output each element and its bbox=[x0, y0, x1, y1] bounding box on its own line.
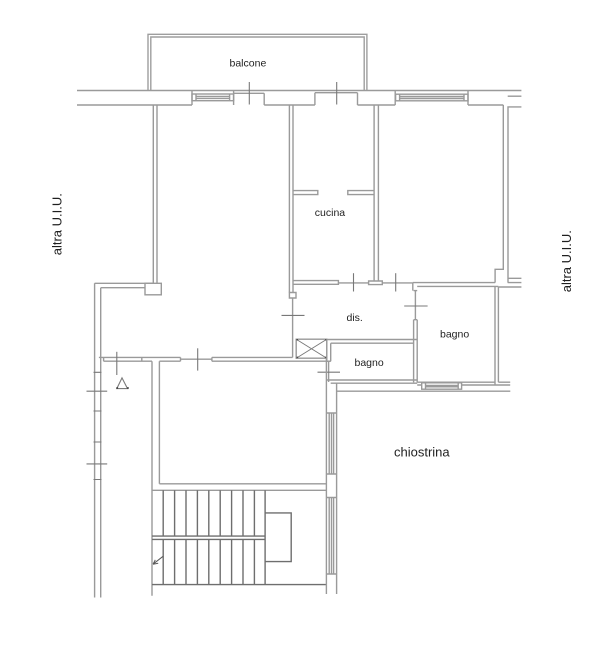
svg-text:altra U.I.U.: altra U.I.U. bbox=[49, 193, 64, 255]
svg-text:cucina: cucina bbox=[315, 207, 346, 219]
svg-text:dis.: dis. bbox=[347, 312, 363, 324]
svg-text:altra U.I.U.: altra U.I.U. bbox=[559, 230, 574, 292]
svg-text:bagno: bagno bbox=[355, 357, 384, 369]
svg-text:chiostrina: chiostrina bbox=[394, 445, 450, 460]
svg-text:bagno: bagno bbox=[440, 329, 469, 341]
svg-text:balcone: balcone bbox=[230, 57, 267, 69]
